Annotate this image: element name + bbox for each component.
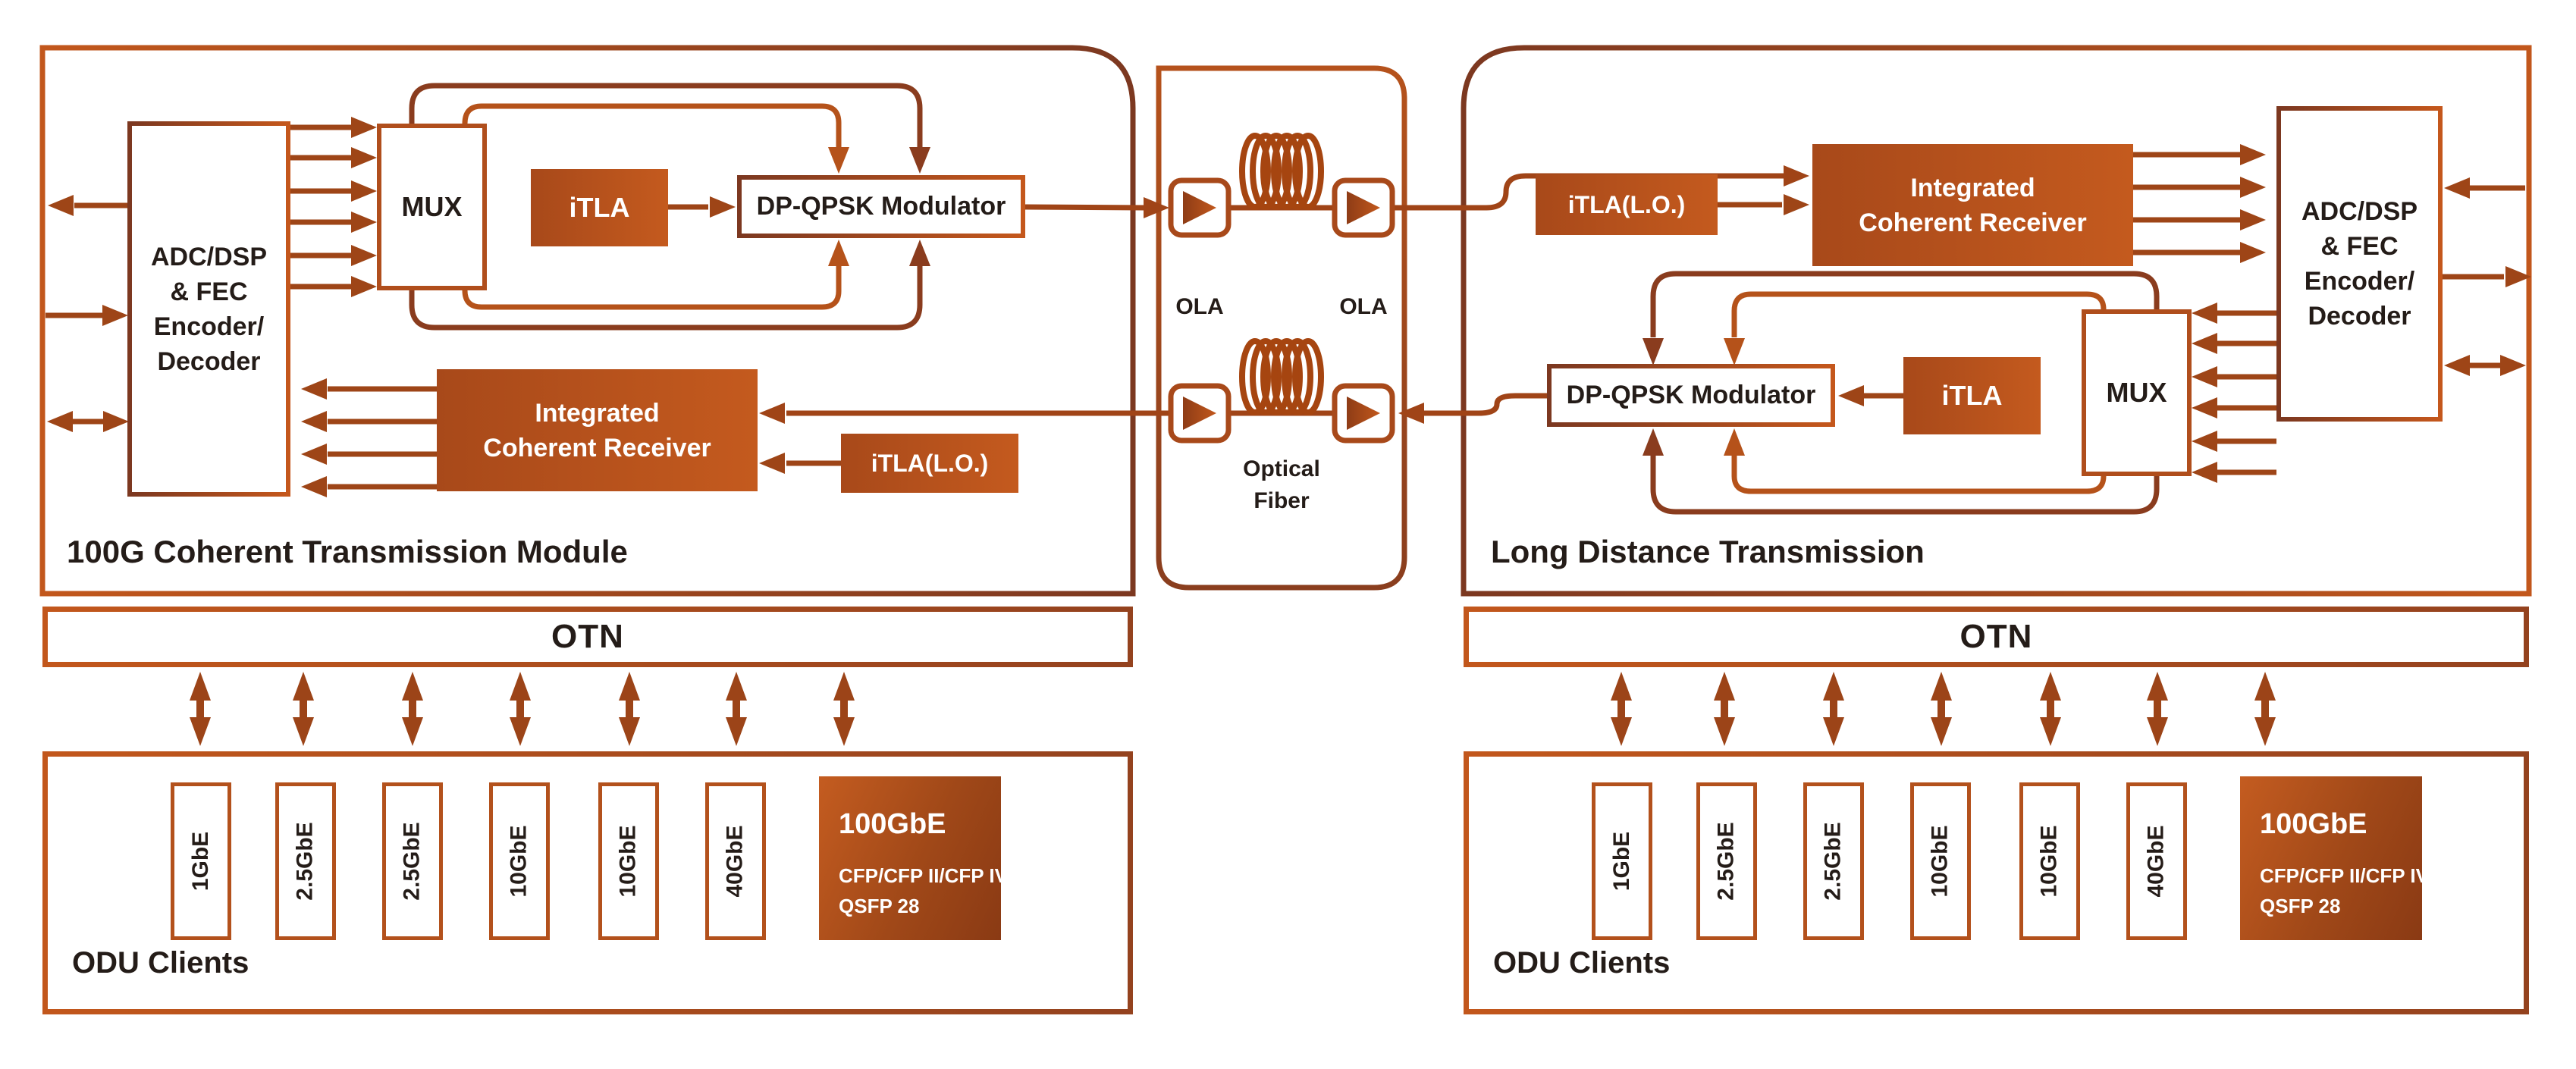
otn-label: OTN [1960,618,2033,656]
left-module-title: 100G Coherent Transmission Module [67,534,628,570]
client-label: 10GbE [507,825,532,897]
client-100gbe-box-right: 100GbE CFP/CFP II/CFP IV QSFP 28 [2240,776,2422,940]
adc-line: ADC/DSP [151,240,267,274]
client-100gbe-line: CFP/CFP II/CFP IV [839,861,1001,891]
modulator-label: DP-QPSK Modulator [757,192,1006,221]
right-itla-to-modulator-arrow [1838,385,1903,406]
fiber-coil-icon-bottom [1242,341,1321,412]
itla-lo-label: iTLA(L.O.) [1568,191,1686,219]
mux-box-right: MUX [2082,309,2192,476]
left-adc-to-mux-arrows [290,117,377,297]
odu-clients-title-right: ODU Clients [1493,946,1670,980]
mux-label: MUX [2107,377,2167,409]
right-module-io-arrows [2443,177,2531,376]
optical-fiber-line: Optical [1212,453,1351,485]
receiver-line: Coherent Receiver [483,431,711,466]
client-100gbe-title: 100GbE [839,808,1001,841]
itla-label: iTLA [1942,380,2003,412]
itla-lo-box-right: iTLA(L.O.) [1536,174,1718,235]
itla-label: iTLA [569,192,630,224]
client-label: 10GbE [2037,825,2063,897]
left-module-io-arrows [45,195,129,432]
left-otn-odu-double-arrows [190,672,855,746]
adc-line: Decoder [2308,299,2411,334]
otn-label: OTN [551,618,624,656]
ola-label-right: OLA [1324,294,1403,320]
mux-label: MUX [402,191,463,223]
mux-box-left: MUX [377,124,487,290]
client-slot: 1GbE [1592,782,1652,940]
adc-dsp-box-right: ADC/DSP & FEC Encoder/ Decoder [2276,106,2443,422]
coherent-receiver-box-right: Integrated Coherent Receiver [1812,144,2133,266]
fiber-bottom-path [759,396,1547,424]
client-label: 2.5GbE [293,822,318,900]
client-slot: 2.5GbE [1696,782,1757,940]
adc-dsp-box-left: ADC/DSP & FEC Encoder/ Decoder [127,121,290,497]
dp-qpsk-modulator-box-left: DP-QPSK Modulator [737,175,1025,238]
adc-line: Encoder/ [154,309,264,344]
adc-line: ADC/DSP [2301,194,2418,229]
receiver-line: Integrated [535,396,659,431]
left-itla-to-modulator-arrow [668,196,736,218]
optical-fiber-label: Optical Fiber [1212,453,1351,517]
otn-bar-left: OTN [42,607,1133,667]
client-label: 40GbE [2144,825,2170,897]
client-slot: 40GbE [2126,782,2187,940]
optical-fiber-line: Fiber [1212,485,1351,517]
modulator-label: DP-QPSK Modulator [1567,381,1816,410]
coherent-receiver-box-left: Integrated Coherent Receiver [437,369,758,491]
client-label: 40GbE [723,825,748,897]
receiver-line: Coherent Receiver [1859,205,2086,240]
client-100gbe-title: 100GbE [2260,808,2422,841]
right-receiver-to-adc-arrows [2133,144,2266,263]
otn-bar-right: OTN [1464,607,2529,667]
client-slot: 2.5GbE [1803,782,1864,940]
client-label: 2.5GbE [400,822,425,900]
dp-qpsk-modulator-box-right: DP-QPSK Modulator [1547,364,1835,427]
client-slot: 2.5GbE [382,782,443,940]
client-100gbe-line: CFP/CFP II/CFP IV [2260,861,2422,891]
adc-line: Decoder [157,344,260,379]
itla-lo-box-left: iTLA(L.O.) [841,434,1018,493]
client-100gbe-line: QSFP 28 [839,891,1001,921]
client-slot: 1GbE [171,782,231,940]
client-label: 2.5GbE [1821,822,1846,900]
adc-line: & FEC [2321,229,2399,264]
client-slot: 40GbE [705,782,766,940]
client-slot: 10GbE [2019,782,2080,940]
right-adc-to-mux-arrows [2192,303,2276,483]
client-slot: 2.5GbE [275,782,336,940]
itla-box-left: iTLA [531,169,668,246]
client-slot: 10GbE [489,782,550,940]
right-itla-lo-to-receiver-arrow [1718,194,1809,215]
client-slot: 10GbE [1910,782,1971,940]
ola-label-left: OLA [1160,294,1239,320]
fiber-coil-icon-top [1242,136,1321,207]
right-otn-odu-double-arrows [1611,672,2276,746]
left-receiver-to-adc-arrows [301,378,437,497]
diagram-canvas: ADC/DSP & FEC Encoder/ Decoder MUX iTLA … [0,0,2576,1069]
client-label: 2.5GbE [1714,822,1740,900]
right-module-title: Long Distance Transmission [1491,534,1925,570]
odu-clients-title-left: ODU Clients [72,946,249,980]
client-label: 1GbE [1609,832,1635,891]
client-label: 10GbE [616,825,642,897]
client-100gbe-box-left: 100GbE CFP/CFP II/CFP IV QSFP 28 [819,776,1001,940]
itla-box-right: iTLA [1903,357,2041,434]
adc-line: & FEC [171,274,248,309]
client-100gbe-line: QSFP 28 [2260,891,2422,921]
adc-line: Encoder/ [2305,264,2414,299]
client-label: 10GbE [1928,825,1953,897]
client-slot: 10GbE [598,782,659,940]
receiver-line: Integrated [1910,171,2035,205]
itla-lo-label: iTLA(L.O.) [871,450,989,478]
client-label: 1GbE [188,832,214,891]
left-itla-lo-to-receiver-arrow [759,453,841,474]
